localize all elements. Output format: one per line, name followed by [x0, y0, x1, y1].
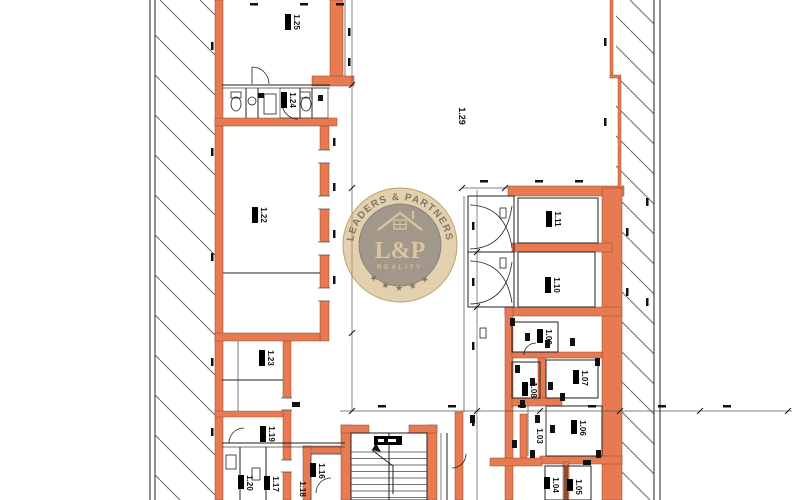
room-label-1-20: 1.20: [238, 475, 254, 491]
svg-text:1.20: 1.20: [245, 475, 254, 491]
watermark-tagline: REALITY: [377, 264, 423, 271]
room-label-1-16: 1.16: [310, 463, 326, 479]
svg-text:1.06: 1.06: [578, 420, 587, 436]
room-label-1-03: 1.03: [535, 428, 544, 444]
svg-text:1.08: 1.08: [529, 382, 538, 398]
site-hatch-right: [616, 0, 660, 500]
room-label-1-10: 1.10: [545, 277, 561, 293]
floor-plan-canvas: 1.25 1.24 1.22 1.23 1.19 1.20 1.17 1.18 …: [0, 0, 800, 500]
room-label-1-08: 1.08: [522, 382, 538, 398]
watermark-monogram: L&P: [375, 238, 426, 264]
svg-text:1.29: 1.29: [457, 107, 467, 125]
svg-text:1.03: 1.03: [535, 428, 544, 444]
svg-text:1.05: 1.05: [574, 479, 583, 495]
svg-text:1.11: 1.11: [553, 211, 562, 227]
svg-text:1.23: 1.23: [266, 350, 275, 366]
room-label-1-11: 1.11: [546, 211, 562, 227]
room-label-1-19: 1.19: [260, 426, 276, 442]
room-label-1-24: 1.24: [281, 92, 297, 108]
svg-text:1.09: 1.09: [544, 329, 553, 345]
svg-text:1.18: 1.18: [298, 481, 307, 497]
svg-text:1.16: 1.16: [317, 463, 326, 479]
svg-text:1.24: 1.24: [288, 92, 297, 108]
room-label-1-07: 1.07: [573, 370, 589, 386]
watermark-logo: LEADERS & PARTNERS L&P REALITY ★ ★ ★ ★ ★: [343, 188, 457, 302]
room-label-1-29: 1.29: [457, 107, 467, 125]
svg-text:1.17: 1.17: [271, 476, 280, 492]
svg-text:1.22: 1.22: [259, 207, 268, 223]
svg-text:1.10: 1.10: [552, 277, 561, 293]
room-label-1-18: 1.18: [298, 481, 307, 497]
room-label-1-09: 1.09: [537, 329, 553, 345]
room-label-1-23: 1.23: [259, 350, 275, 366]
room-label-1-17: 1.17: [264, 476, 280, 492]
svg-text:1.07: 1.07: [580, 370, 589, 386]
floor-plan-page: 1.25 1.24 1.22 1.23 1.19 1.20 1.17 1.18 …: [0, 0, 800, 500]
room-label-1-22: 1.22: [252, 207, 268, 223]
room-label-1-06: 1.06: [571, 420, 587, 436]
svg-text:1.19: 1.19: [267, 426, 276, 442]
room-label-1-25: 1.25: [285, 14, 301, 30]
site-hatch-left: [150, 0, 215, 500]
svg-text:1.25: 1.25: [292, 14, 301, 30]
svg-text:1.04: 1.04: [551, 477, 560, 493]
